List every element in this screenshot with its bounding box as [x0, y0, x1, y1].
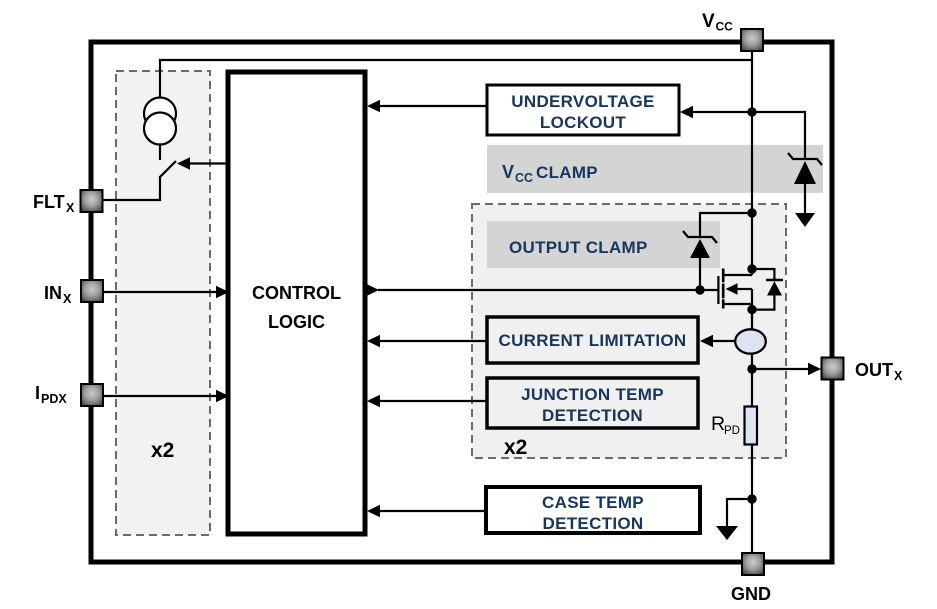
svg-text:GND: GND [731, 584, 771, 604]
svg-text:CLAMP: CLAMP [536, 163, 598, 182]
svg-text:OUTPUT CLAMP: OUTPUT CLAMP [509, 238, 648, 257]
svg-text:JUNCTION TEMP: JUNCTION TEMP [521, 385, 664, 404]
svg-text:CONTROL: CONTROL [252, 283, 341, 303]
svg-text:PDX: PDX [41, 392, 67, 406]
svg-text:LOGIC: LOGIC [268, 312, 325, 332]
svg-text:CC: CC [515, 171, 533, 185]
svg-text:CURRENT LIMITATION: CURRENT LIMITATION [499, 331, 687, 350]
svg-text:CASE TEMP: CASE TEMP [542, 493, 644, 512]
svg-text:X: X [63, 292, 72, 306]
svg-text:LOCKOUT: LOCKOUT [540, 113, 626, 132]
svg-text:FLT: FLT [33, 192, 65, 212]
svg-text:IN: IN [44, 283, 62, 303]
svg-text:V: V [702, 11, 715, 32]
svg-text:PD: PD [724, 425, 740, 437]
svg-text:x2: x2 [151, 439, 174, 462]
svg-text:UNDERVOLTAGE: UNDERVOLTAGE [511, 92, 654, 111]
svg-text:V: V [502, 162, 514, 182]
svg-text:DETECTION: DETECTION [543, 514, 644, 533]
svg-text:OUT: OUT [855, 360, 893, 380]
svg-text:x2: x2 [504, 436, 527, 459]
svg-text:DETECTION: DETECTION [542, 406, 643, 425]
svg-text:X: X [894, 369, 903, 383]
svg-text:X: X [66, 201, 75, 215]
svg-text:R: R [711, 413, 725, 435]
svg-text:I: I [35, 383, 40, 403]
svg-text:CC: CC [716, 20, 734, 34]
